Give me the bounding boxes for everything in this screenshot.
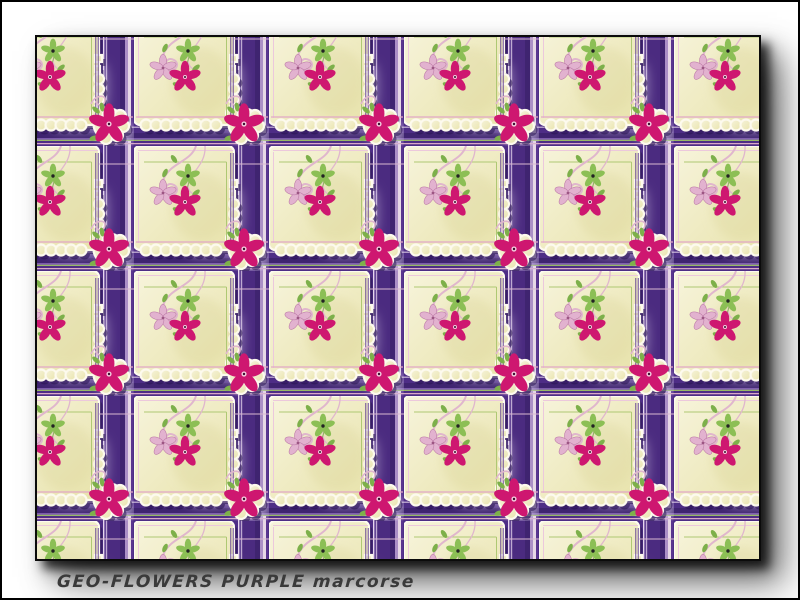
pattern-tiles: [37, 37, 759, 559]
caption-text: GEO-FLOWERS PURPLE marcorse: [56, 572, 415, 592]
pattern-swatch-frame: [35, 35, 761, 561]
image-canvas: GEO-FLOWERS PURPLE marcorse: [0, 0, 800, 600]
geo-flowers-pattern-image: [37, 37, 759, 559]
caption: GEO-FLOWERS PURPLE marcorse: [56, 572, 415, 592]
